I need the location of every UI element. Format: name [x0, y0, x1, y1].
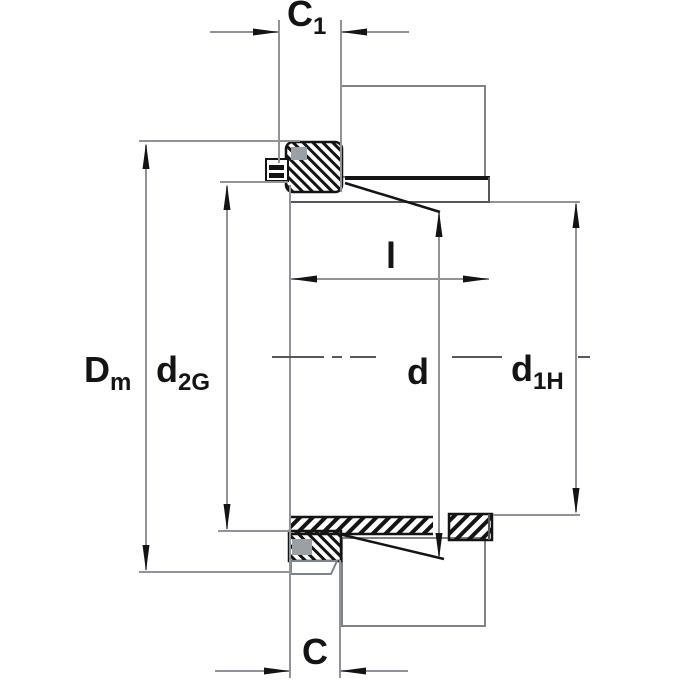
drawing-canvas: C1 Dm d2G l d d1H C: [0, 0, 680, 680]
clamped-ring-top-view: [341, 86, 485, 177]
locknut-bottom-section: [289, 531, 341, 574]
l-arrow-left: [291, 276, 317, 283]
label-d: d: [407, 351, 429, 392]
label-l: l: [386, 235, 396, 276]
dm-arrow-top: [143, 143, 150, 169]
d1h-arrow-top: [573, 202, 580, 228]
d1h-arrow-bottom: [573, 488, 580, 514]
c-arrow-left: [264, 668, 290, 675]
d-arrow-top: [436, 211, 443, 237]
c-arrow-right: [340, 668, 366, 675]
sleeve-hatch-right-block: [449, 514, 492, 540]
dimension-d: [436, 211, 443, 559]
technical-drawing-adapter-sleeve: C1 Dm d2G l d d1H C: [0, 0, 680, 680]
ring-top-outline: [341, 86, 485, 177]
c1-arrow-left: [253, 29, 279, 36]
locknut-bottom-chamfer: [291, 561, 337, 574]
locknut-top-slot: [291, 147, 307, 160]
l-arrow-right: [463, 276, 489, 283]
dm-arrow-bottom: [143, 545, 150, 571]
d2g-arrow-bottom: [224, 504, 231, 530]
locknut-top-section: [266, 142, 342, 192]
locknut-bottom-slot: [292, 539, 312, 555]
c1-arrow-right: [341, 29, 367, 36]
label-c1: C1: [287, 0, 326, 40]
label-dm: Dm: [84, 349, 131, 396]
label-d2g: d2G: [156, 349, 210, 396]
label-d1h: d1H: [511, 348, 564, 395]
label-c: C: [302, 631, 328, 672]
taper-line-top: [345, 183, 440, 212]
d2g-arrow-top: [224, 184, 231, 210]
locknut-slot-tab-bar2: [269, 173, 284, 178]
dimension-l: [291, 276, 489, 283]
locknut-slot-tab-bar1: [269, 165, 284, 170]
